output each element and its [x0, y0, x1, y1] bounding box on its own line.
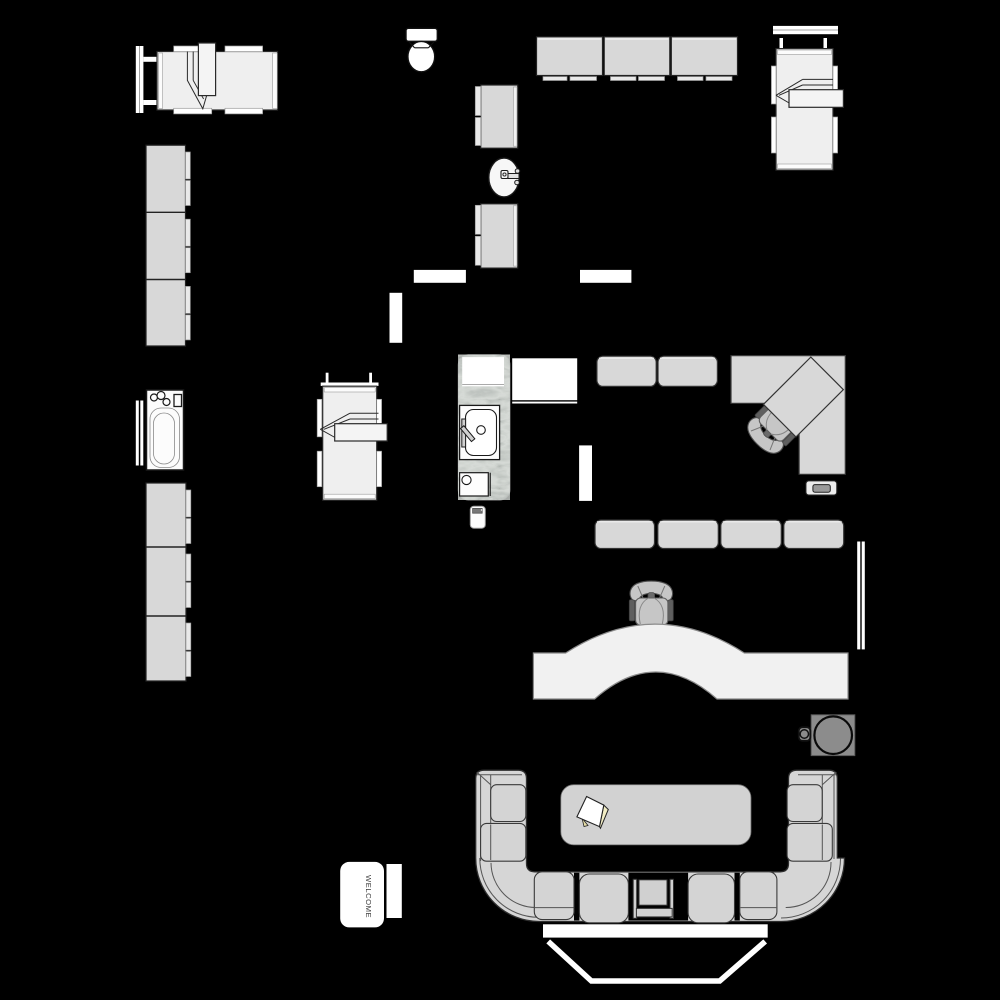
- svg-text:WELCOME: WELCOME: [364, 875, 373, 918]
